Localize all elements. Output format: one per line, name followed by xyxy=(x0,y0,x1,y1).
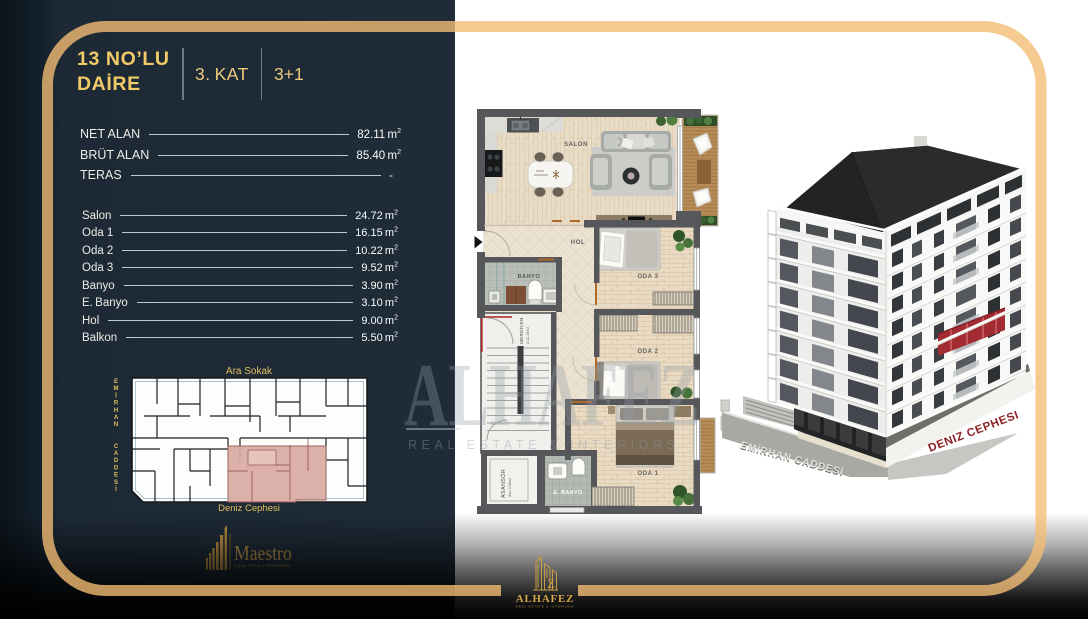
svg-text:REAL ESTATE & INTERIORS: REAL ESTATE & INTERIORS xyxy=(516,605,574,609)
svg-text:ALHAFEZ: ALHAFEZ xyxy=(516,593,575,605)
svg-text:Z: Z xyxy=(547,576,555,591)
